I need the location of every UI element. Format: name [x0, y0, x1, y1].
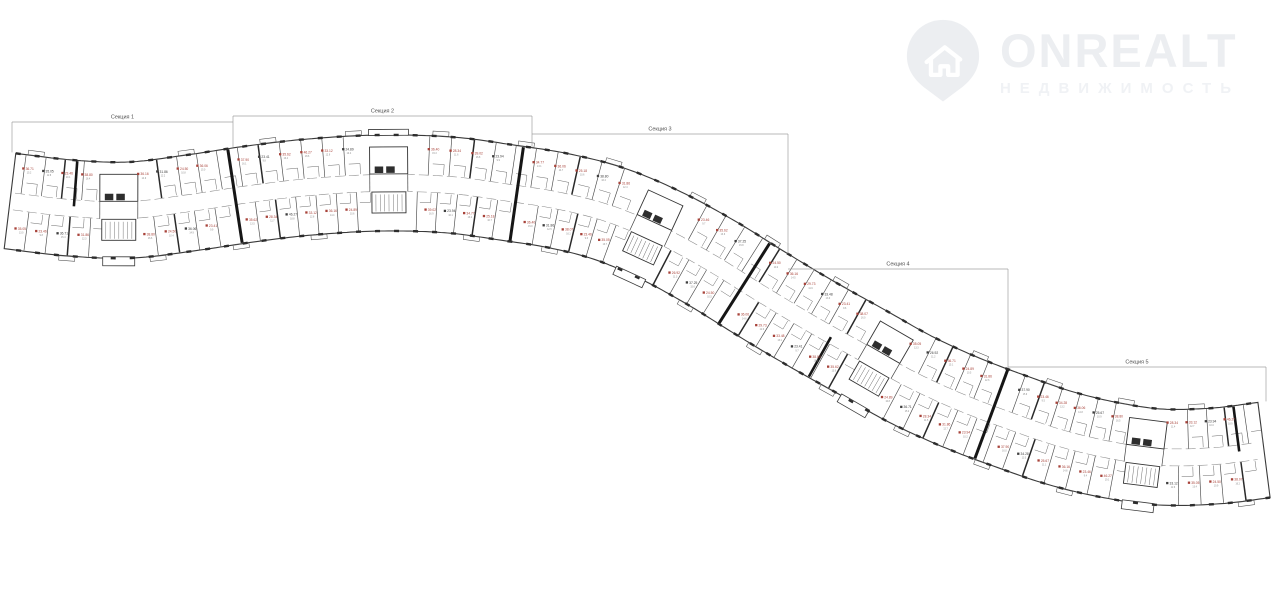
svg-text:15.9: 15.9 [1023, 394, 1028, 396]
svg-text:12.2: 12.2 [161, 175, 166, 177]
svg-text:14.7: 14.7 [559, 170, 564, 172]
svg-text:14.4: 14.4 [330, 215, 335, 217]
svg-text:15.6: 15.6 [690, 286, 695, 288]
svg-text:14.5: 14.5 [791, 277, 796, 279]
svg-text:33.12: 33.12 [1189, 421, 1197, 425]
svg-text:28.34: 28.34 [1170, 421, 1178, 425]
svg-text:11.7: 11.7 [270, 221, 275, 223]
svg-text:46.27: 46.27 [1227, 418, 1235, 422]
svg-text:24.89: 24.89 [966, 367, 974, 371]
svg-text:12.7: 12.7 [1190, 426, 1195, 428]
svg-text:12.3: 12.3 [82, 239, 87, 241]
svg-text:10.5: 10.5 [967, 373, 972, 375]
svg-text:23.94: 23.94 [962, 431, 970, 435]
svg-text:35.62: 35.62 [282, 153, 290, 157]
svg-text:35.05: 35.05 [18, 227, 26, 231]
svg-text:10.2: 10.2 [963, 436, 968, 438]
svg-text:23.46: 23.46 [1040, 395, 1048, 399]
svg-text:14.9: 14.9 [189, 232, 194, 234]
svg-text:15.1: 15.1 [949, 365, 954, 367]
svg-text:37.25: 37.25 [738, 239, 746, 243]
svg-text:36.16: 36.16 [1062, 465, 1070, 469]
svg-text:37.90: 37.90 [1001, 445, 1009, 449]
svg-text:24.89: 24.89 [349, 208, 357, 212]
svg-text:24.50: 24.50 [706, 291, 714, 295]
brand-pin-icon [900, 16, 986, 108]
svg-text:35.62: 35.62 [249, 218, 257, 222]
svg-text:28.34: 28.34 [269, 215, 277, 219]
svg-text:12.9: 12.9 [326, 154, 331, 156]
svg-text:34.77: 34.77 [466, 211, 474, 215]
svg-text:23.46: 23.46 [38, 229, 46, 233]
svg-text:33.12: 33.12 [324, 149, 332, 153]
svg-text:39.02: 39.02 [428, 208, 436, 212]
svg-text:16.1: 16.1 [242, 163, 247, 165]
svg-text:23.94: 23.94 [495, 155, 503, 159]
svg-text:24.50: 24.50 [168, 230, 176, 234]
svg-text:10.5: 10.5 [707, 297, 712, 299]
svg-text:28.34: 28.34 [453, 149, 461, 153]
svg-text:33.48: 33.48 [776, 334, 784, 338]
svg-text:31.86: 31.86 [622, 181, 630, 185]
brand-subtitle: НЕДВИЖИМОСТЬ [1000, 80, 1240, 97]
svg-text:25.67: 25.67 [1096, 411, 1104, 415]
svg-text:10.1: 10.1 [66, 177, 71, 179]
svg-text:29.73: 29.73 [807, 282, 815, 286]
svg-text:26.92: 26.92 [930, 351, 938, 355]
svg-text:10.8: 10.8 [181, 173, 186, 175]
svg-text:12.8: 12.8 [47, 175, 52, 177]
svg-text:11.2: 11.2 [931, 356, 936, 358]
svg-text:10.7: 10.7 [487, 220, 492, 222]
svg-text:39.02: 39.02 [475, 152, 483, 156]
svg-text:31.86: 31.86 [546, 224, 554, 228]
svg-text:10.9: 10.9 [1097, 416, 1102, 418]
svg-text:26.92: 26.92 [672, 271, 680, 275]
section-label: Секция 3 [648, 127, 671, 133]
svg-text:35.05: 35.05 [601, 238, 609, 242]
svg-text:23.46: 23.46 [584, 232, 592, 236]
svg-text:12.5: 12.5 [547, 229, 552, 231]
svg-text:35.05: 35.05 [46, 169, 54, 173]
svg-text:23.94: 23.94 [1208, 420, 1216, 424]
svg-text:36.40: 36.40 [527, 220, 535, 224]
svg-text:13.7: 13.7 [603, 244, 608, 246]
svg-text:24.89: 24.89 [345, 148, 353, 152]
svg-text:13.2: 13.2 [468, 217, 473, 219]
svg-text:23.46: 23.46 [65, 171, 73, 175]
svg-text:18.8: 18.8 [290, 218, 295, 220]
svg-text:11.4: 11.4 [1171, 427, 1176, 429]
svg-text:12.4: 12.4 [623, 187, 628, 189]
svg-text:38.07: 38.07 [860, 312, 868, 316]
svg-text:13.4: 13.4 [284, 158, 289, 160]
svg-text:23.46: 23.46 [701, 218, 709, 222]
svg-text:16.0: 16.0 [861, 318, 866, 320]
svg-text:37.90: 37.90 [1022, 388, 1030, 392]
svg-text:13.6: 13.6 [721, 234, 726, 236]
brand-watermark: ONREALT НЕДВИЖИМОСТЬ [900, 16, 1240, 108]
svg-text:16.4: 16.4 [86, 178, 91, 180]
svg-text:34.28: 34.28 [1059, 401, 1067, 405]
svg-text:46.27: 46.27 [1104, 474, 1112, 478]
svg-text:23.94: 23.94 [447, 209, 455, 213]
svg-text:25.67: 25.67 [1041, 459, 1049, 463]
svg-text:36.71: 36.71 [948, 359, 956, 363]
svg-text:38.80: 38.80 [85, 173, 93, 177]
svg-text:35.05: 35.05 [1191, 481, 1199, 485]
svg-text:36.06: 36.06 [558, 164, 566, 168]
svg-text:16.2: 16.2 [1235, 483, 1240, 485]
svg-text:10.4: 10.4 [347, 153, 352, 155]
svg-text:38.80: 38.80 [1115, 415, 1123, 419]
svg-text:14.8: 14.8 [1078, 412, 1083, 414]
svg-text:23.41: 23.41 [209, 224, 217, 228]
svg-text:15.8: 15.8 [739, 245, 744, 247]
svg-text:11.9: 11.9 [808, 288, 813, 290]
svg-text:35.05: 35.05 [913, 342, 921, 346]
svg-text:10.6: 10.6 [350, 214, 355, 216]
svg-text:16.8: 16.8 [476, 157, 481, 159]
svg-text:15.3: 15.3 [432, 153, 437, 155]
svg-text:38.07: 38.07 [1234, 478, 1242, 482]
svg-text:31.86: 31.86 [160, 170, 168, 174]
svg-text:36.71: 36.71 [60, 232, 68, 236]
svg-text:13.9: 13.9 [832, 371, 837, 373]
svg-text:25.18: 25.18 [579, 169, 587, 173]
svg-text:33.12: 33.12 [309, 211, 317, 215]
svg-text:34.77: 34.77 [536, 161, 544, 165]
svg-text:14.9: 14.9 [142, 178, 147, 180]
svg-text:18.6: 18.6 [305, 156, 310, 158]
svg-text:36.71: 36.71 [26, 167, 34, 171]
svg-text:36.40: 36.40 [431, 148, 439, 152]
svg-text:35.62: 35.62 [830, 365, 838, 369]
svg-text:28.34: 28.34 [923, 414, 931, 418]
balcony [59, 256, 75, 262]
svg-text:10.6: 10.6 [580, 174, 585, 176]
svg-text:23.46: 23.46 [1083, 470, 1091, 474]
svg-text:33.12: 33.12 [1170, 481, 1178, 485]
svg-text:16.1: 16.1 [566, 233, 571, 235]
svg-text:16.2: 16.2 [601, 180, 606, 182]
svg-text:24.50: 24.50 [772, 261, 780, 265]
svg-text:13.1: 13.1 [537, 166, 542, 168]
svg-text:34.28: 34.28 [1021, 452, 1029, 456]
svg-text:12.0: 12.0 [760, 329, 765, 331]
svg-text:36.71: 36.71 [904, 405, 912, 409]
svg-text:29.73: 29.73 [758, 323, 766, 327]
svg-text:24.50: 24.50 [1213, 480, 1221, 484]
svg-text:12.8: 12.8 [310, 216, 315, 218]
svg-text:12.6: 12.6 [1171, 487, 1176, 489]
svg-text:23.41: 23.41 [261, 155, 269, 159]
svg-text:19.1: 19.1 [1105, 480, 1110, 482]
svg-text:36.06: 36.06 [200, 164, 208, 168]
svg-text:16.9: 16.9 [429, 214, 434, 216]
svg-text:38.80: 38.80 [147, 232, 155, 236]
svg-text:38.80: 38.80 [600, 174, 608, 178]
svg-text:13.3: 13.3 [1022, 458, 1027, 460]
svg-text:15.0: 15.0 [201, 170, 206, 172]
svg-text:25.18: 25.18 [486, 214, 494, 218]
svg-text:36.06: 36.06 [188, 227, 196, 231]
building-band [4, 135, 1270, 506]
svg-text:13.5: 13.5 [250, 223, 255, 225]
svg-text:36.06: 36.06 [741, 313, 749, 317]
svg-text:24.89: 24.89 [884, 395, 892, 399]
svg-text:11.5: 11.5 [924, 420, 929, 422]
svg-text:23.41: 23.41 [842, 302, 850, 306]
section-label: Секция 1 [111, 115, 134, 121]
section-label: Секция 4 [886, 262, 909, 268]
svg-text:24.50: 24.50 [180, 167, 188, 171]
svg-text:10.2: 10.2 [774, 267, 779, 269]
svg-text:16.3: 16.3 [814, 361, 819, 363]
svg-text:13.4: 13.4 [1192, 487, 1197, 489]
svg-text:10.8: 10.8 [885, 401, 890, 403]
svg-text:14.6: 14.6 [742, 318, 747, 320]
svg-text:10.1: 10.1 [448, 215, 453, 217]
svg-text:46.27: 46.27 [304, 151, 312, 155]
brand-text-block: ONREALT НЕДВИЖИМОСТЬ [1000, 27, 1240, 97]
svg-text:12.7: 12.7 [943, 428, 948, 430]
svg-text:15.2: 15.2 [27, 172, 32, 174]
svg-text:38.07: 38.07 [565, 228, 573, 232]
svg-text:13.1: 13.1 [777, 340, 782, 342]
svg-text:11.1: 11.1 [1042, 464, 1047, 466]
svg-text:15.2: 15.2 [905, 411, 910, 413]
svg-text:15.0: 15.0 [528, 226, 533, 228]
svg-text:36.16: 36.16 [140, 172, 148, 176]
svg-text:37.90: 37.90 [241, 158, 249, 162]
svg-text:14.8: 14.8 [1063, 470, 1068, 472]
svg-text:35.62: 35.62 [719, 228, 727, 232]
svg-text:13.0: 13.0 [19, 232, 24, 234]
svg-text:46.27: 46.27 [289, 213, 297, 217]
svg-text:10.9: 10.9 [1214, 486, 1219, 488]
svg-text:23.41: 23.41 [794, 345, 802, 349]
svg-text:36.06: 36.06 [1077, 406, 1085, 410]
svg-text:31.86: 31.86 [942, 423, 950, 427]
svg-text:16.5: 16.5 [1116, 420, 1121, 422]
svg-text:18.9: 18.9 [1228, 423, 1233, 425]
svg-text:37.25: 37.25 [689, 281, 697, 285]
svg-text:36.16: 36.16 [329, 209, 337, 213]
svg-text:33.48: 33.48 [824, 292, 832, 296]
svg-text:11.6: 11.6 [454, 155, 459, 157]
svg-text:38.80: 38.80 [812, 355, 820, 359]
section-label: Секция 5 [1125, 360, 1148, 366]
svg-text:10.0: 10.0 [1209, 425, 1214, 427]
svg-text:36.16: 36.16 [790, 272, 798, 276]
svg-text:31.86: 31.86 [81, 233, 89, 237]
svg-text:16.6: 16.6 [148, 238, 153, 240]
svg-text:15.4: 15.4 [61, 237, 66, 239]
section-label: Секция 2 [371, 109, 394, 115]
svg-text:31.86: 31.86 [984, 374, 992, 378]
svg-text:16.0: 16.0 [1002, 451, 1007, 453]
svg-text:13.0: 13.0 [826, 298, 831, 300]
svg-text:11.3: 11.3 [673, 277, 678, 279]
svg-text:13.3: 13.3 [914, 348, 919, 350]
svg-text:12.6: 12.6 [985, 380, 990, 382]
svg-text:10.4: 10.4 [169, 235, 174, 237]
svg-text:13.2: 13.2 [1060, 407, 1065, 409]
brand-name: ONREALT [1000, 27, 1238, 74]
